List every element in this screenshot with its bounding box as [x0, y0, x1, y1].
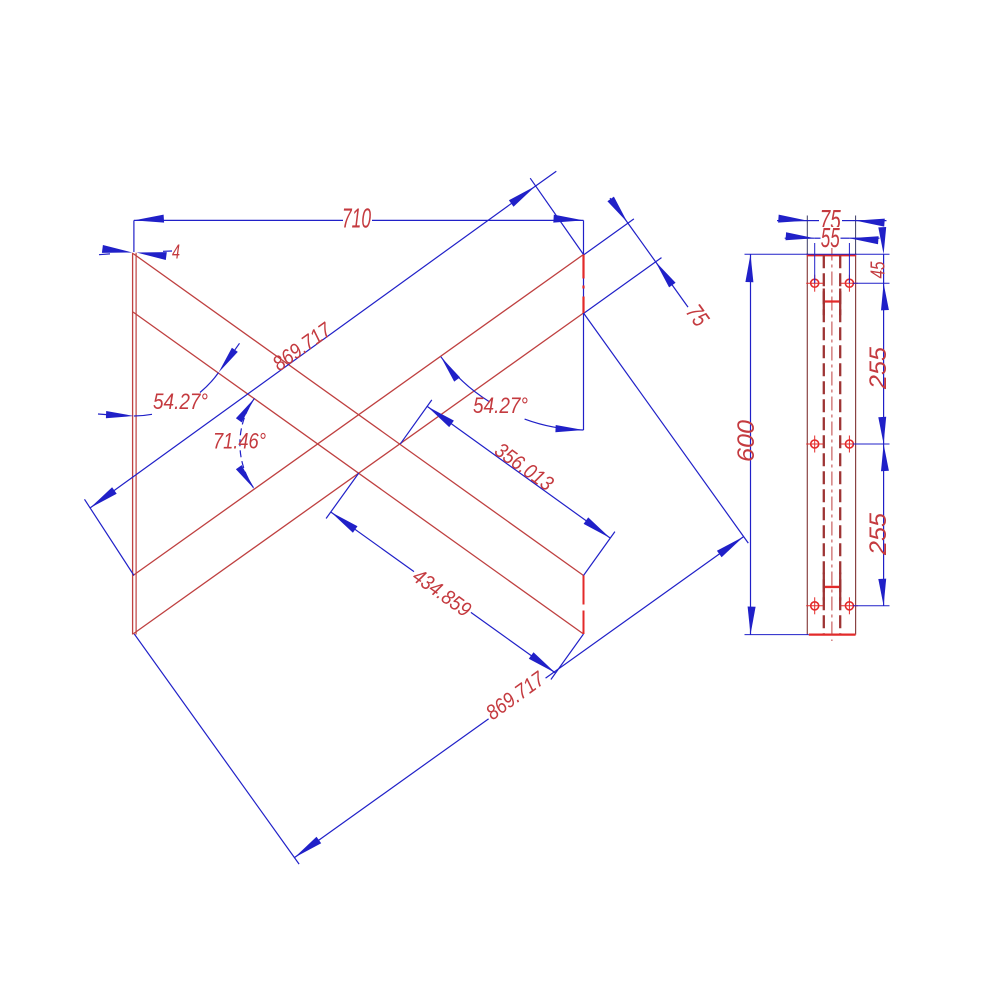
svg-text:255: 255: [865, 346, 892, 390]
svg-text:45: 45: [868, 261, 890, 279]
svg-text:4: 4: [172, 242, 180, 264]
svg-text:54.27°: 54.27°: [473, 393, 528, 418]
svg-text:71.46°: 71.46°: [213, 429, 266, 454]
svg-text:600: 600: [733, 419, 760, 462]
svg-text:55: 55: [821, 222, 840, 253]
svg-text:54.27°: 54.27°: [153, 389, 208, 414]
svg-text:255: 255: [865, 512, 892, 556]
svg-text:710: 710: [342, 203, 371, 234]
